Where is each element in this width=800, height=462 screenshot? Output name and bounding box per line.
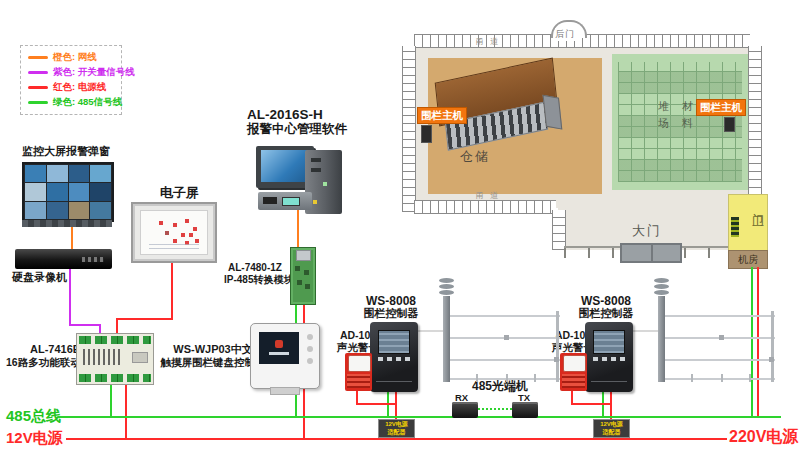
purple-line-swatch — [28, 71, 48, 74]
site-map: 后门 甬 道 甬 道 仓储 堆 材 场 料 围栏主机 围栏主机 大门 — [398, 10, 798, 272]
main-gate-label: 大门 — [632, 222, 662, 240]
fence-connector — [504, 335, 509, 340]
bus-12v-label: 12V电源 — [6, 429, 63, 447]
legend-label: 绿色: 485信号线 — [53, 96, 122, 109]
adapter-label-line1: 12V电源 — [379, 420, 414, 428]
fence-end-post — [556, 311, 559, 382]
legend-item-power: 红色: 电源线 — [28, 81, 121, 94]
red-line-swatch — [28, 86, 48, 89]
converter-label-line1: AL-7480-1Z — [228, 262, 282, 274]
electric-fence-1 — [436, 278, 568, 388]
video-wall-cell — [25, 183, 46, 200]
controller2-label-line2: 围栏控制器 — [575, 307, 637, 320]
green-line-swatch — [28, 101, 48, 104]
siren1-device — [345, 353, 372, 391]
eboard-screen — [140, 210, 208, 255]
video-wall-cell — [25, 165, 46, 182]
video-wall-cell — [90, 183, 111, 200]
legend-item-485: 绿色: 485信号线 — [28, 96, 121, 109]
linkage-label-line1: AL-7416E — [30, 343, 80, 356]
video-wall-cell — [47, 202, 68, 219]
pc-screen — [261, 150, 309, 182]
guard-house: 门卫 — [728, 194, 768, 252]
back-gate-label: 后门 — [555, 28, 575, 41]
fence-host-badge-right: 围栏主机 — [696, 99, 746, 116]
software-label-line1: AL-2016S-H — [247, 107, 323, 123]
wire-linkage-power — [125, 383, 127, 439]
video-wall-cell — [90, 202, 111, 219]
perimeter-fence-bottom-left — [414, 200, 556, 214]
road-label-mid: 甬 道 — [476, 190, 500, 201]
controller-screen — [378, 330, 410, 354]
video-wall-cell — [25, 202, 46, 219]
perimeter-fence-left — [402, 46, 416, 212]
keypad-stand — [270, 387, 300, 395]
wire-siren1-bend — [356, 403, 397, 405]
optical-tx-device — [512, 402, 538, 418]
controller-buttons — [593, 357, 625, 361]
fence-host-device-left — [421, 125, 432, 143]
stockyard-label-line2: 场 料 — [658, 115, 698, 132]
keypad-buttons — [307, 334, 313, 340]
module-tag — [132, 352, 148, 363]
adapter-label-line2: 适配器 — [379, 428, 414, 436]
siren-panel — [348, 355, 371, 372]
fence-wire — [450, 378, 560, 380]
monitor-wall-label: 监控大屏报警弹窗 — [22, 145, 110, 158]
legend-box: 橙色: 网线 紫色: 开关量信号线 红色: 电源线 绿色: 485信号线 — [20, 45, 122, 115]
road-label-top: 甬 道 — [476, 36, 500, 47]
eboard-indicator-dots — [159, 221, 163, 225]
fiber-dotted-link — [478, 408, 512, 410]
fence-connector — [769, 357, 774, 362]
video-wall — [22, 162, 114, 222]
fence-host-device-right — [724, 117, 735, 132]
dvr-label: 硬盘录像机 — [12, 271, 67, 284]
orange-line-swatch — [28, 56, 48, 59]
pc-console — [258, 192, 312, 210]
wire-eboard-down — [171, 258, 173, 320]
wire-eboard-bend — [116, 318, 173, 320]
fence-wire — [665, 359, 775, 361]
fence-pole — [443, 296, 450, 382]
wire-eboard-to-linkage — [116, 318, 118, 334]
controller-footer — [591, 381, 627, 382]
controller2-device — [585, 322, 633, 392]
bus-power-line — [66, 438, 727, 440]
controller-footer — [376, 381, 412, 382]
fence-dropper — [506, 374, 508, 382]
main-gate-bar — [620, 243, 682, 263]
dvr-device — [15, 249, 112, 269]
keypad-screen — [259, 332, 299, 364]
legend-label: 红色: 电源线 — [53, 81, 106, 94]
fence-dropper — [476, 374, 478, 382]
fence-pole — [658, 296, 665, 382]
video-wall-cell — [69, 183, 90, 200]
bus-485-label: 485总线 — [6, 407, 61, 425]
linkage-module-device — [76, 333, 154, 385]
perimeter-fence-jog — [552, 210, 566, 250]
machine-room: 机房 — [728, 250, 768, 269]
fence-connector — [554, 357, 559, 362]
legend-label: 紫色: 开关量信号线 — [53, 66, 135, 79]
video-wall-cell — [90, 165, 111, 182]
module-vents — [83, 349, 123, 365]
stockyard-label-line1: 堆 材 — [658, 98, 698, 115]
siren-fins — [562, 374, 585, 388]
guard-label: 门卫 — [749, 203, 766, 209]
video-wall-bezel — [22, 220, 112, 227]
eboard-device — [131, 202, 217, 263]
video-wall-cell — [47, 165, 68, 182]
fence-connector — [719, 335, 724, 340]
eboard-label: 电子屏 — [160, 185, 199, 201]
siren2-device — [560, 353, 587, 391]
controller1-device — [370, 322, 418, 392]
video-wall-cell — [69, 202, 90, 219]
bus-485-line — [58, 416, 781, 418]
wire-siren2-bend — [571, 403, 612, 405]
fence-host-badge-left: 围栏主机 — [417, 107, 467, 124]
legend-item-network: 橙色: 网线 — [28, 51, 121, 64]
eboard-diagram-lines — [149, 241, 199, 249]
video-wall-cell — [69, 165, 90, 182]
fence-wire — [450, 359, 560, 361]
converter-label-line2: IP-485转换模块 — [224, 274, 293, 286]
wire-linkage-485 — [110, 383, 112, 417]
video-wall-cell — [47, 183, 68, 200]
legend-item-switch-signal: 紫色: 开关量信号线 — [28, 66, 121, 79]
controller1-label-line2: 围栏控制器 — [360, 307, 422, 320]
electric-fence-2 — [651, 278, 783, 388]
power-adapter-1: 12V电源 适配器 — [378, 419, 415, 438]
terminal-row-top — [79, 336, 151, 344]
wire-dvr-bend — [69, 324, 101, 326]
fence-wire — [665, 378, 775, 380]
optical-rx-device — [452, 402, 478, 418]
ip485-converter-device — [290, 247, 316, 305]
adapter-label-line2: 适配器 — [594, 428, 629, 436]
insulator-stack — [654, 278, 669, 283]
keypad-logo — [275, 340, 283, 348]
controller-screen — [593, 330, 625, 354]
fence-dropper — [749, 374, 751, 382]
controller-buttons — [378, 357, 410, 361]
guard-device — [731, 217, 739, 237]
fence-wire — [665, 315, 775, 317]
power-adapter-2: 12V电源 适配器 — [593, 419, 630, 438]
stockyard-label: 堆 材 场 料 — [658, 98, 698, 132]
siren-panel — [563, 355, 586, 372]
fence-wire — [450, 315, 560, 317]
software-label-line2: 报警中心管理软件 — [247, 122, 347, 137]
fence-end-post — [771, 311, 774, 382]
perimeter-fence-right — [748, 46, 762, 196]
terminal-row-bottom — [79, 374, 151, 382]
insulator-stack — [439, 278, 454, 283]
legend-label: 橙色: 网线 — [53, 51, 97, 64]
adapter-label-line1: 12V电源 — [594, 420, 629, 428]
fence-dropper — [691, 374, 693, 382]
fence-dropper — [534, 374, 536, 382]
fence-dropper — [721, 374, 723, 382]
keypad-device — [250, 323, 320, 389]
warehouse-label: 仓储 — [460, 148, 490, 166]
wire-pc-to-converter — [297, 210, 299, 247]
wire-dvr-down — [69, 269, 71, 326]
siren-fins — [347, 374, 370, 388]
diagram-canvas: 橙色: 网线 紫色: 开关量信号线 红色: 电源线 绿色: 485信号线 — [0, 0, 800, 462]
bus-220v-label: 220V电源 — [729, 427, 798, 446]
